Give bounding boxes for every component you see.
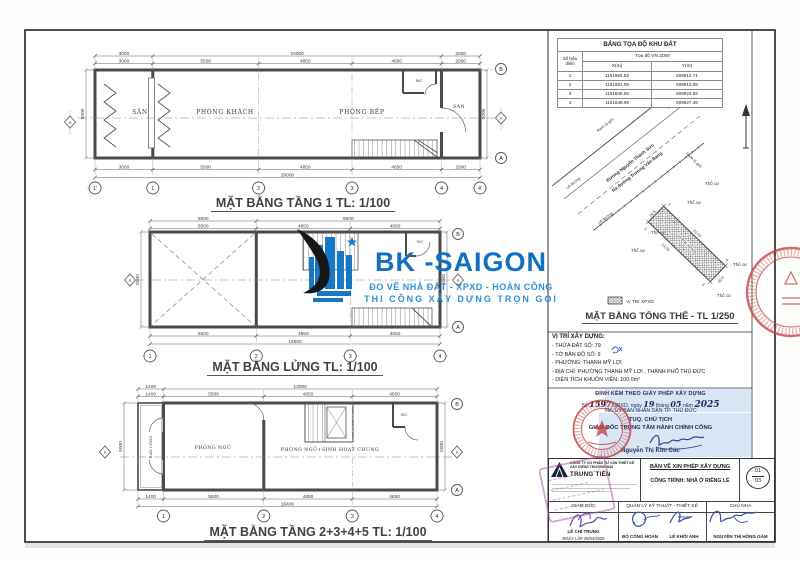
dim-total: 20000 xyxy=(281,172,295,178)
bk-saigon-watermark: BK -SAIGON ĐO VẼ NHÀ ĐẤT - XPXD - HOÀN C… xyxy=(295,229,563,307)
plan3-title: MẶT BẰNG TẦNG 2+3+4+5 TL: 1/100 xyxy=(158,525,478,539)
axis-label-b: B xyxy=(455,402,459,408)
section-mark: A xyxy=(69,120,72,125)
room-label-san: SÂN xyxy=(132,109,148,116)
land-label: Thổ cư xyxy=(631,248,645,253)
section-mark: A xyxy=(456,450,459,455)
location-line: - PHƯỜNG: THẠNH MỸ LỢI xyxy=(552,359,748,368)
room-label-living: PHÒNG KHÁCH xyxy=(196,108,254,116)
legend-label: VỊ TRÍ XPXD xyxy=(626,298,654,305)
land-label: Thổ cư xyxy=(733,262,747,267)
dim-side: 5000 xyxy=(439,441,445,452)
land-label: Thổ cư xyxy=(717,293,731,298)
role-director: GIÁM ĐỐC xyxy=(549,504,618,509)
section-mark: A xyxy=(104,450,107,455)
plan2-title: MẶT BẰNG LỬNG TL: 1/100 xyxy=(145,360,445,374)
stairs-floor1 xyxy=(352,140,437,157)
room-label-san-rear: SÂN xyxy=(453,103,465,110)
dim: 4650 xyxy=(389,391,400,397)
dim: 1400 xyxy=(145,384,156,390)
dim: 4850 xyxy=(303,494,314,500)
dim: 5500 xyxy=(208,494,219,500)
company-prefix: CÔNG TY CỔ PHẦN TƯ VẤN THIẾT KẾ XÂY DỰNG… xyxy=(570,461,640,470)
grid-label: 1 xyxy=(151,186,154,192)
land-label: Thổ cư xyxy=(651,230,665,235)
company-address-lines xyxy=(552,484,637,485)
coordinate-table: BẢNG TỌA ĐỘ KHU ĐẤT Số hiệu điểm Tọa độ … xyxy=(557,38,723,108)
grid-label: 2 xyxy=(257,186,260,192)
dim: 5500 xyxy=(208,391,219,397)
col-x-header: X(m) xyxy=(583,62,652,72)
axis-label-a: A xyxy=(455,488,459,494)
role-owner: CHỦ NHÀ xyxy=(706,504,775,509)
table-row: 21191861.09609910.08 xyxy=(558,81,723,90)
grid-label: 1 xyxy=(162,514,165,520)
logo-name: BK -SAIGON xyxy=(361,249,561,276)
plan1-title: MẶT BẰNG TẦNG 1 TL: 1/100 xyxy=(153,196,453,210)
company-logo-icon xyxy=(551,462,568,477)
role-tech: QUẢN LÝ KỸ THUẬT - THIẾT KẾ xyxy=(618,504,706,509)
blueprint-sheet: 3000 15000 2000 3000 5500 4850 4650 2000… xyxy=(0,0,800,562)
dim-side: 5000 xyxy=(481,108,487,119)
document-type: BẢN VẼ XIN PHÉP XÂY DỰNG xyxy=(641,464,739,470)
room-label-wc: WC xyxy=(401,412,408,417)
table-row: 41191849.99609927.45 xyxy=(558,99,723,108)
grid-label: 3 xyxy=(351,514,354,520)
project-name: CÔNG TRÌNH: NHÀ Ở RIÊNG LẺ xyxy=(641,478,739,484)
table-row: 31191846.55609923.82 xyxy=(558,90,723,99)
logo-tagline-1: ĐO VẼ NHÀ ĐẤT - XPXD - HOÀN CÔNG xyxy=(361,282,561,292)
grid-label: 4 xyxy=(440,186,443,192)
company-name: TRUNG TIẾN xyxy=(570,471,640,478)
permit-line1: ĐÍNH KÈM THEO GIẤY PHÉP XÂY DỰNG xyxy=(549,391,752,397)
sheet-number: 01 03 xyxy=(746,466,770,489)
site-plan-title: MẶT BẰNG TỔNG THỂ - TL 1/250 xyxy=(560,311,760,322)
dim: 4650 xyxy=(389,494,400,500)
location-line: - ĐỊA CHỈ: PHƯỜNG THẠNH MỸ LỢI , THÀNH P… xyxy=(552,368,748,377)
legend-swatch xyxy=(608,297,622,304)
col-y-header: Y(m) xyxy=(652,62,723,72)
dim: 9500 xyxy=(343,216,354,222)
company-address-lines xyxy=(552,488,630,489)
date-created: NGÀY LẬP 28/04/2025 xyxy=(549,536,618,541)
logo-tagline-2: THI CÔNG XÂY DỰNG TRỌN GÓI xyxy=(361,294,561,304)
grid-label: 2 xyxy=(262,514,265,520)
grid-label: 4' xyxy=(478,186,482,192)
dim: 5500 xyxy=(198,223,209,229)
land-label: Thổ cư xyxy=(687,200,701,205)
dim: 4850 xyxy=(303,391,314,397)
permit-line3: TM. ỦY BAN NHÂN DÂN TP. THỦ ĐỨC xyxy=(549,408,752,414)
permit-line4: TUQ. CHỦ TỊCH xyxy=(549,417,752,423)
dim: 1400 xyxy=(145,494,156,500)
land-label: Thổ cư xyxy=(705,181,719,186)
room-label-kitchen: PHÒNG BẾP xyxy=(339,108,384,116)
location-line: - TỜ BẢN ĐỒ SỐ: 9 xyxy=(552,351,748,360)
location-line: - THỬA ĐẤT SỐ: 79 xyxy=(552,342,748,351)
dim: 4850 xyxy=(300,164,311,170)
permit-signer-name: Nguyễn Thị Kim Cúc xyxy=(549,448,752,454)
location-line: - DIỆN TÍCH KHUÔN VIÊN: 100.0m² xyxy=(552,376,748,385)
bk-saigon-logo-icon xyxy=(295,229,361,307)
section-mark: A xyxy=(500,116,503,121)
construction-location-info: VỊ TRÍ XÂY DỰNG: - THỬA ĐẤT SỐ: 79 - TỜ … xyxy=(552,334,748,385)
axis-label-b: B xyxy=(499,67,503,73)
sheet-edge-shadow xyxy=(25,543,775,548)
dim: 2000 xyxy=(455,164,466,170)
company-address-lines xyxy=(552,491,610,492)
dim-total: 16400 xyxy=(281,501,295,507)
table-row: 11191864.53609913.71 xyxy=(558,72,723,81)
dim: 5500 xyxy=(198,216,209,222)
dim: 4650 xyxy=(391,164,402,170)
grid-label: 4 xyxy=(436,514,439,520)
sheet-total: 03 xyxy=(747,477,769,486)
grid-label: 1' xyxy=(93,186,97,192)
coord-system: Tọa độ VN 2000 xyxy=(583,52,723,62)
dim-side: 5000 xyxy=(118,441,124,452)
room-label-wc: WC xyxy=(416,78,423,83)
building-permit-block: ĐÍNH KÈM THEO GIẤY PHÉP XÂY DỰNG Số 1597… xyxy=(549,389,752,458)
dim: 3000 xyxy=(119,58,130,64)
dim: 1400 xyxy=(145,391,156,397)
coordinate-table-title: BẢNG TỌA ĐỘ KHU ĐẤT xyxy=(558,39,723,52)
dim: 3000 xyxy=(119,164,130,170)
stairs-mezz-lower xyxy=(352,308,432,327)
dim: 4850 xyxy=(300,58,311,64)
dim: 2000 xyxy=(455,58,466,64)
dim: 5500 xyxy=(200,58,211,64)
dim: 5500 xyxy=(198,331,209,337)
title-block: CÔNG TY CỔ PHẦN TƯ VẤN THIẾT KẾ XÂY DỰNG… xyxy=(548,458,775,542)
section-mark: A xyxy=(129,278,132,283)
dim: 15000 xyxy=(291,51,305,57)
dim: 5500 xyxy=(200,164,211,170)
location-title: VỊ TRÍ XÂY DỰNG: xyxy=(552,334,748,340)
dim: 4650 xyxy=(390,331,401,337)
dim: 3000 xyxy=(119,51,130,57)
sheet-no: 01 xyxy=(747,467,769,476)
dim-total: 15000 xyxy=(288,339,302,345)
tech-name-2: LÊ KHÔI ANH xyxy=(662,534,706,539)
axis-label-a: A xyxy=(456,325,460,331)
dim: 4850 xyxy=(298,331,309,337)
dim: 13000 xyxy=(294,384,308,390)
col-point-header: Số hiệu điểm xyxy=(558,52,583,72)
dim-side: 5000 xyxy=(135,274,141,285)
dim-side: 5000 xyxy=(80,108,86,119)
dim: 4650 xyxy=(391,58,402,64)
director-name: LÊ CHÍ TRUNG xyxy=(549,529,618,534)
owner-name: NGUYỄN THỊ HỒNG GẤM xyxy=(706,534,775,539)
permit-line5: GIÁM ĐỐC TRUNG TÂM HÀNH CHÍNH CÔNG xyxy=(549,425,752,431)
dim: 2000 xyxy=(455,51,466,57)
tech-name-1: ĐỖ CÔNG HOAN xyxy=(618,534,662,539)
axis-label-a: A xyxy=(499,156,503,162)
room-label-balcony: BAN CÔNG xyxy=(148,436,153,458)
grid-label: 3 xyxy=(351,186,354,192)
